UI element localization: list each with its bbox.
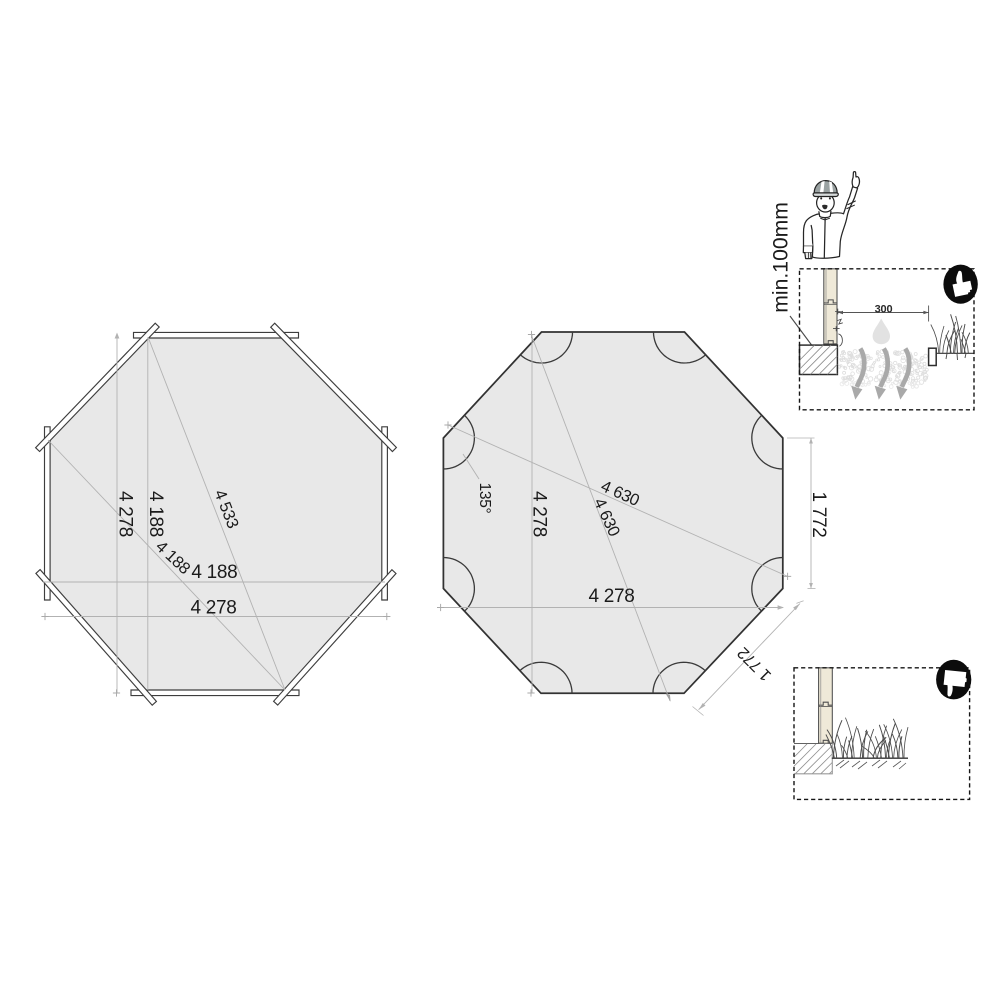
- svg-text:4 278: 4 278: [588, 586, 634, 607]
- svg-text:4 278: 4 278: [115, 491, 136, 537]
- svg-text:4 188: 4 188: [191, 562, 237, 583]
- svg-text:1 772: 1 772: [734, 644, 775, 685]
- svg-text:1 772: 1 772: [808, 491, 829, 537]
- svg-text:4 188: 4 188: [145, 491, 166, 537]
- svg-text:min.100mm: min.100mm: [769, 202, 792, 313]
- svg-text:135°: 135°: [476, 483, 493, 514]
- svg-text:4 278: 4 278: [529, 491, 550, 537]
- svg-text:4 278: 4 278: [190, 597, 236, 618]
- svg-text:300: 300: [875, 303, 893, 315]
